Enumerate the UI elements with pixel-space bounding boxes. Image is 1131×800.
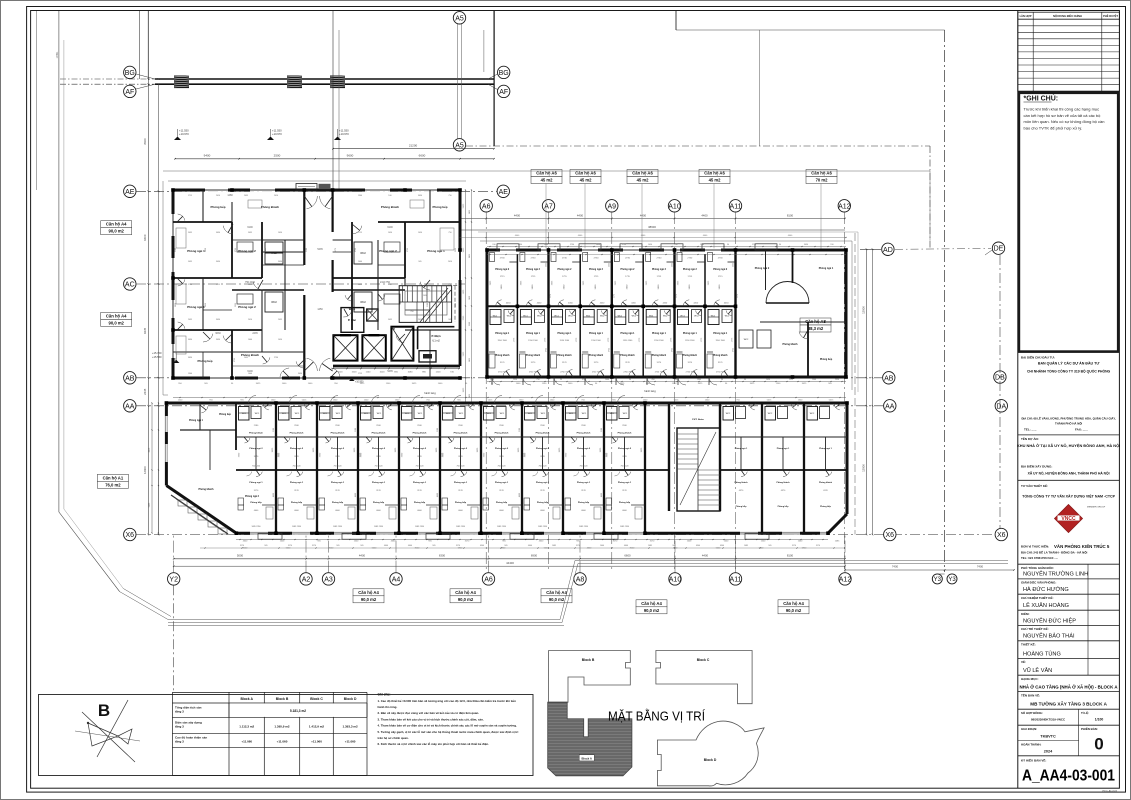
svg-text:5435: 5435 [358, 284, 362, 286]
svg-text:2750 750: 2750 750 [655, 372, 664, 374]
svg-text:Phòng ngủ 2: Phòng ngủ 2 [372, 447, 386, 450]
svg-text:7400: 7400 [977, 565, 984, 569]
svg-text:Phòng ngủ 1: Phòng ngủ 1 [187, 305, 205, 309]
svg-text:3530: 3530 [524, 453, 526, 457]
svg-text:1550 1560: 1550 1560 [623, 340, 633, 342]
svg-text:Căn hộ A4: Căn hộ A4 [546, 590, 567, 595]
svg-text:Phòng ngủ 1: Phòng ngủ 1 [819, 447, 832, 450]
svg-text:70 m2: 70 m2 [816, 178, 829, 183]
svg-text:LÊ XUÂN HOÀNG: LÊ XUÂN HOÀNG [1023, 601, 1069, 609]
svg-text:910: 910 [492, 244, 495, 246]
svg-text:P. Điện: P. Điện [431, 334, 440, 338]
svg-text:+11.060: +11.060 [345, 739, 356, 743]
svg-text:3. Tham khảo bản vẽ kết cấu ch: 3. Tham khảo bản vẽ kết cấu cho vị trí v… [378, 717, 484, 721]
svg-text:45 m2: 45 m2 [637, 178, 650, 183]
svg-text:905: 905 [264, 545, 267, 547]
svg-text:tầng 3: tầng 3 [175, 725, 184, 729]
svg-text:2750 750: 2750 750 [592, 372, 601, 374]
svg-text:Phòng khách: Phòng khách [454, 433, 468, 435]
svg-text:6900: 6900 [720, 545, 724, 547]
svg-text:1085 2350: 1085 2350 [456, 526, 465, 528]
svg-text:1450: 1450 [278, 339, 282, 341]
svg-text:Phòng ngủ 2: Phòng ngủ 2 [495, 268, 510, 271]
svg-text:90: 90 [560, 379, 562, 381]
svg-text:6. Kích thước và vị trí chính: 6. Kích thước và vị trí chính xác các lỗ… [378, 742, 490, 746]
svg-text:Phòng khách: Phòng khách [589, 355, 604, 357]
svg-text:AB: AB [125, 375, 135, 382]
svg-text:5000: 5000 [237, 554, 244, 558]
svg-text:Phòng bếp: Phòng bếp [619, 501, 631, 504]
svg-text:TÊN DỰ ÁN:: TÊN DỰ ÁN: [1021, 436, 1039, 441]
svg-text:1000: 1000 [338, 371, 344, 373]
svg-text:90: 90 [721, 379, 723, 381]
svg-text:2410: 2410 [448, 261, 452, 263]
svg-text:ĐỊA CHỈ: 243 ĐÊ LA THÀNH - ĐỐN: ĐỊA CHỈ: 243 ĐÊ LA THÀNH - ĐỐNG ĐA - HÀ … [1021, 549, 1088, 554]
svg-text:6600: 6600 [624, 554, 631, 558]
svg-text:2180: 2180 [437, 428, 439, 432]
svg-text:2335: 2335 [671, 263, 673, 267]
svg-text:tầng 3: tầng 3 [175, 710, 184, 714]
svg-text:Phòng bếp: Phòng bếp [291, 501, 303, 504]
svg-text:MẶT BẰNG VỊ TRÍ: MẶT BẰNG VỊ TRÍ [608, 709, 705, 724]
svg-text:Phòng ngủ 1: Phòng ngủ 1 [187, 249, 205, 253]
svg-text:2410: 2410 [248, 319, 252, 321]
svg-text:Phòng ngủ 2: Phòng ngủ 2 [413, 447, 427, 450]
svg-text:+15.550: +15.550 [152, 355, 162, 359]
svg-text:2180: 2180 [175, 248, 177, 252]
svg-text:3170: 3170 [240, 545, 244, 547]
svg-text:VẼ:: VẼ: [1021, 659, 1026, 664]
svg-text:HẠNG MỤC:: HẠNG MỤC: [1021, 677, 1039, 681]
svg-text:5. Tường xây gạch, vị trí các: 5. Tường xây gạch, vị trí các lỗ mở sàn … [378, 730, 519, 734]
svg-text:2180: 2180 [601, 428, 603, 432]
svg-text:6100: 6100 [247, 226, 253, 229]
svg-text:hành lang: hành lang [424, 391, 436, 395]
svg-text:1085 2350: 1085 2350 [538, 526, 547, 528]
svg-text:3170: 3170 [576, 545, 580, 547]
svg-text:THIẾT KẾ:: THIẾT KẾ: [1021, 641, 1036, 646]
svg-text:3030: 3030 [216, 261, 220, 263]
svg-text:X6: X6 [997, 532, 1006, 539]
svg-text:9630: 9630 [418, 195, 422, 197]
svg-text:Phòng ngủ 1: Phòng ngủ 1 [427, 249, 445, 253]
svg-text:90,0 m2: 90,0 m2 [644, 608, 660, 613]
svg-text:+10.970: +10.970 [179, 132, 189, 136]
svg-text:Phòng ngủ 2: Phòng ngủ 2 [621, 268, 636, 271]
svg-text:A2: A2 [302, 576, 311, 583]
svg-text:45 m2: 45 m2 [709, 178, 722, 183]
svg-text:Phòng ngủ 1: Phòng ngủ 1 [331, 481, 345, 484]
svg-text:2730: 2730 [625, 258, 631, 260]
svg-text:45 m2: 45 m2 [580, 178, 593, 183]
svg-text:Y3: Y3 [948, 577, 956, 583]
svg-text:1000: 1000 [358, 261, 362, 263]
svg-text:6100: 6100 [387, 226, 393, 229]
svg-text:1200: 1200 [436, 371, 442, 373]
svg-text:PHIÊN BẢN:: PHIÊN BẢN: [1081, 726, 1098, 731]
svg-text:1550 1560: 1550 1560 [715, 340, 725, 342]
svg-text:76,0 m2: 76,0 m2 [105, 482, 121, 487]
svg-text:1000: 1000 [248, 339, 252, 341]
svg-text:Y2: Y2 [169, 576, 178, 583]
svg-text:8100: 8100 [787, 213, 794, 217]
svg-text:3030: 3030 [205, 248, 207, 252]
svg-text:+11.060: +11.060 [241, 739, 252, 743]
svg-text:Căn hộ A4: Căn hộ A4 [358, 590, 379, 595]
svg-text:Phòng ngủ 1: Phòng ngủ 1 [819, 267, 834, 270]
svg-text:1550 1560: 1550 1560 [528, 340, 538, 342]
svg-text:4600: 4600 [384, 545, 388, 547]
svg-text:4600: 4600 [355, 493, 357, 497]
svg-text:38,3 m2: 38,3 m2 [808, 326, 824, 331]
svg-text:3735: 3735 [671, 348, 673, 352]
svg-text:2335: 2335 [609, 263, 611, 267]
svg-text:Phòng khách: Phòng khách [536, 433, 550, 435]
svg-text:Căn hộ A4: Căn hộ A4 [641, 601, 662, 606]
svg-text:Phòng ngủ 2: Phòng ngủ 2 [652, 268, 667, 271]
svg-text:1000: 1000 [605, 379, 609, 381]
svg-text:Phòng khách: Phòng khách [331, 433, 345, 435]
svg-text:2750 750: 2750 750 [560, 372, 569, 374]
svg-text:12900: 12900 [143, 466, 147, 474]
svg-text:A5: A5 [455, 142, 464, 149]
svg-text:3030: 3030 [175, 358, 177, 362]
svg-text:Phòng bếp: Phòng bếp [211, 205, 226, 209]
svg-text:750 1420: 750 1420 [416, 466, 424, 468]
svg-text:Phòng bếp: Phòng bếp [373, 501, 385, 504]
svg-text:750: 750 [536, 379, 539, 381]
svg-text:4600: 4600 [528, 545, 532, 547]
svg-text:Phòng ngủ 1: Phòng ngủ 1 [495, 481, 509, 484]
svg-text:2730: 2730 [687, 258, 693, 260]
svg-text:2730: 2730 [718, 258, 724, 260]
svg-text:2730: 2730 [274, 357, 278, 359]
svg-text:Trước khi triển khai thi công: Trước khi triển khai thi công các hạng m… [1024, 107, 1100, 112]
svg-text:2180: 2180 [427, 303, 429, 307]
svg-text:905: 905 [672, 545, 675, 547]
svg-text:9630: 9630 [215, 332, 221, 335]
svg-text:5435: 5435 [248, 284, 252, 286]
svg-text:GIÁM ĐỐC VĂN PHÒNG:: GIÁM ĐỐC VĂN PHÒNG: [1021, 580, 1056, 585]
svg-text:3030: 3030 [205, 303, 207, 307]
svg-text:1175: 1175 [550, 294, 552, 298]
svg-text:1450: 1450 [418, 232, 422, 234]
svg-text:A3: A3 [324, 576, 333, 583]
svg-text:1550 1560: 1550 1560 [497, 340, 507, 342]
svg-text:Block C: Block C [310, 697, 323, 701]
svg-text:TÊN BẢN VẼ:: TÊN BẢN VẼ: [1021, 692, 1040, 697]
svg-text:1000: 1000 [600, 545, 604, 547]
svg-text:1100: 1100 [366, 371, 371, 373]
svg-text:ĐƠN VỊ THỰC HIỆN:: ĐƠN VỊ THỰC HIỆN: [1021, 544, 1049, 549]
svg-text:2024: 2024 [1044, 749, 1053, 753]
svg-text:Phòng ngủ 2: Phòng ngủ 2 [557, 268, 572, 271]
svg-text:2435: 2435 [278, 319, 282, 321]
svg-text:CHỦ NHIỆM THIẾT KẾ:: CHỦ NHIỆM THIẾT KẾ: [1021, 595, 1054, 600]
svg-text:1. Cao độ thiết kế ±0.000 trên: 1. Cao độ thiết kế ±0.000 trên bản vẽ tư… [378, 699, 517, 703]
svg-text:A10: A10 [669, 576, 682, 583]
svg-text:5435: 5435 [469, 210, 471, 214]
svg-text:1450: 1450 [423, 295, 427, 297]
svg-text:3030: 3030 [216, 319, 220, 321]
svg-text:1085: 1085 [648, 545, 652, 547]
svg-text:P.KT. Nước: P.KT. Nước [692, 419, 704, 421]
svg-text:100: 100 [388, 195, 391, 197]
svg-text:Phòng ngủ 1: Phòng ngủ 1 [536, 481, 550, 484]
svg-text:750 1420: 750 1420 [375, 466, 383, 468]
svg-text:750 1420: 750 1420 [334, 466, 342, 468]
svg-text:1000: 1000 [380, 371, 386, 373]
svg-text:Phòng ngủ 1: Phòng ngủ 1 [652, 332, 667, 335]
svg-text:Căn hộ A4: Căn hộ A4 [455, 590, 476, 595]
svg-text:Phòng ngủ 1: Phòng ngủ 1 [777, 447, 790, 450]
svg-text:Phòng khách: Phòng khách [372, 433, 386, 435]
svg-text:4400: 4400 [514, 213, 521, 217]
svg-text:2730: 2730 [188, 284, 192, 286]
svg-text:1085 2350: 1085 2350 [333, 526, 342, 528]
svg-text:AD: AD [883, 247, 893, 254]
svg-text:2730: 2730 [562, 258, 568, 260]
svg-text:Phòng ngủ 1: Phòng ngủ 1 [713, 332, 728, 335]
svg-text:3030: 3030 [298, 373, 302, 375]
svg-text:1715: 1715 [358, 232, 362, 234]
svg-text:Căn hộ A4: Căn hộ A4 [106, 313, 127, 318]
svg-text:trên hệ sơ chính quan.: trên hệ sơ chính quan. [378, 736, 409, 740]
svg-text:TEL: 024 37661706 FAX:.....: TEL: 024 37661706 FAX:..... [1021, 556, 1058, 560]
svg-text:TEL: ......: TEL: ...... [1024, 427, 1037, 431]
svg-text:6900: 6900 [480, 545, 484, 547]
svg-text:2750 750: 2750 750 [623, 372, 632, 374]
svg-text:AA: AA [125, 403, 135, 410]
svg-text:1085 2350: 1085 2350 [374, 526, 383, 528]
svg-text:905: 905 [418, 261, 421, 263]
svg-text:2435: 2435 [244, 357, 248, 359]
svg-text:2180: 2180 [355, 428, 357, 432]
svg-text:21200: 21200 [409, 143, 418, 147]
svg-text:Phòng khách: Phòng khách [557, 355, 572, 357]
svg-text:Phòng ngủ 1: Phòng ngủ 1 [290, 481, 304, 484]
svg-text:A12: A12 [838, 203, 851, 210]
svg-text:45 m2: 45 m2 [541, 178, 554, 183]
svg-text:1175: 1175 [676, 294, 678, 298]
svg-text:Phòng bếp: Phòng bếp [578, 501, 590, 504]
svg-text:A7: A7 [544, 203, 553, 210]
svg-text:905: 905 [504, 545, 507, 547]
svg-text:cần kết hợp hồ sơ bản vẽ của t: cần kết hợp hồ sơ bản vẽ của tất cả các … [1024, 113, 1102, 118]
svg-text:+11.060: +11.060 [277, 739, 288, 743]
svg-text:Phòng bếp: Phòng bếp [198, 359, 213, 363]
svg-text:Phòng ngủ 2: Phòng ngủ 2 [536, 447, 550, 450]
svg-text:3170: 3170 [288, 545, 292, 547]
svg-text:1000: 1000 [248, 373, 252, 375]
svg-text:1550 1560: 1550 1560 [654, 340, 664, 342]
svg-text:B: B [98, 701, 110, 720]
svg-text:Phòng ngủ 1: Phòng ngủ 1 [372, 481, 386, 484]
svg-text:ĐẠI DIỆN CHỦ ĐẦU TƯ:: ĐẠI DIỆN CHỦ ĐẦU TƯ: [1021, 355, 1055, 360]
svg-text:38600: 38600 [648, 225, 656, 229]
svg-text:TỈ LỆ:: TỈ LỆ: [1081, 710, 1089, 715]
svg-text:2730: 2730 [752, 244, 756, 246]
svg-text:750 1420: 750 1420 [580, 466, 588, 468]
svg-text:Phòng ngủ 2: Phòng ngủ 2 [245, 495, 260, 498]
svg-text:WC2: WC2 [360, 252, 366, 255]
svg-text:1300: 1300 [358, 195, 362, 197]
svg-text:7400: 7400 [892, 565, 899, 569]
svg-text:1085 2350: 1085 2350 [497, 526, 506, 528]
svg-text:3530: 3530 [360, 453, 362, 457]
svg-text:Y3: Y3 [934, 577, 942, 583]
svg-text:X6: X6 [886, 532, 895, 539]
svg-text:4400: 4400 [577, 213, 584, 217]
svg-text:2180: 2180 [306, 248, 308, 252]
svg-text:3030: 3030 [278, 261, 282, 263]
svg-text:Căn hộ A4: Căn hộ A4 [783, 601, 804, 606]
svg-text:3735: 3735 [355, 248, 357, 252]
svg-text:Phòng bếp: Phòng bếp [219, 413, 231, 416]
svg-text:2435: 2435 [188, 319, 192, 321]
svg-text:2630: 2630 [596, 244, 600, 246]
svg-text:A6: A6 [484, 576, 493, 583]
svg-text:Phòng ngủ 2: Phòng ngủ 2 [495, 447, 509, 450]
svg-text:90: 90 [744, 379, 746, 381]
svg-text:750 1420: 750 1420 [621, 466, 629, 468]
svg-text:2435: 2435 [143, 388, 147, 395]
svg-text:BG: BG [499, 70, 509, 77]
svg-text:Phòng ngủ 2: Phòng ngủ 2 [755, 267, 770, 270]
svg-text:*GHI CHÚ:: *GHI CHÚ: [1024, 94, 1059, 103]
svg-text:1.393,3 m2: 1.393,3 m2 [343, 724, 359, 728]
svg-text:Phòng khách: Phòng khách [526, 355, 541, 357]
svg-text:2410: 2410 [274, 195, 278, 197]
svg-text:MEMBER GROUP: MEMBER GROUP [1087, 507, 1106, 509]
svg-text:+15.700: +15.700 [152, 351, 162, 355]
svg-text:KÝ HIỆU BẢN VẼ:: KÝ HIỆU BẢN VẼ: [1021, 757, 1046, 762]
svg-text:Phòng khách: Phòng khách [577, 433, 591, 435]
svg-text:1550 1560: 1550 1560 [560, 340, 570, 342]
svg-text:Block B: Block B [582, 658, 595, 662]
svg-text:Phòng bếp: Phòng bếp [433, 205, 448, 209]
svg-text:1550 1560: 1550 1560 [591, 340, 601, 342]
svg-text:9435: 9435 [469, 254, 471, 258]
svg-text:750 1420: 750 1420 [539, 466, 547, 468]
svg-text:90: 90 [779, 244, 781, 246]
svg-text:Phòng ngủ 2: Phòng ngủ 2 [249, 447, 263, 450]
svg-text:KHU NHÀ Ở TẠI XÃ UY NỖ, HUYỆN: KHU NHÀ Ở TẠI XÃ UY NỖ, HUYỆN ĐÔNG ANH, … [1017, 443, 1120, 448]
svg-text:3530: 3530 [442, 453, 444, 457]
svg-text:1.412,9 m2: 1.412,9 m2 [309, 724, 325, 728]
svg-text:WC2: WC2 [360, 301, 366, 304]
svg-text:Phòng ngủ 2: Phòng ngủ 2 [713, 268, 728, 271]
svg-text:Phòng ngủ 2: Phòng ngủ 2 [238, 305, 256, 309]
svg-text:1175: 1175 [335, 248, 337, 252]
svg-text:4400: 4400 [359, 554, 366, 558]
svg-text:A11: A11 [730, 576, 742, 583]
svg-text:3170: 3170 [792, 545, 796, 547]
svg-text:MB TƯỜNG XÂY TẦNG 3 BLOCK A: MB TƯỜNG XÂY TẦNG 3 BLOCK A [1030, 699, 1107, 706]
svg-text:1175: 1175 [737, 294, 739, 298]
svg-text:Phòng khách: Phòng khách [290, 433, 304, 435]
svg-text:1480: 1480 [227, 194, 233, 197]
svg-text:Phòng khách: Phòng khách [819, 482, 833, 484]
svg-text:hành lang: hành lang [644, 389, 656, 393]
svg-text:Phòng ngủ 2: Phòng ngủ 2 [526, 268, 541, 271]
svg-text:GIAI ĐOẠN:: GIAI ĐOẠN: [1021, 727, 1037, 731]
svg-text:hành thi công.: hành thi công. [378, 705, 398, 709]
svg-text:750: 750 [388, 284, 391, 286]
svg-text:1085 2350: 1085 2350 [620, 526, 629, 528]
svg-text:Phòng khách: Phòng khách [381, 205, 399, 209]
svg-text:750 1420: 750 1420 [457, 466, 465, 468]
svg-text:AE: AE [125, 189, 135, 196]
svg-text:2335: 2335 [455, 248, 457, 252]
svg-text:5435: 5435 [317, 248, 323, 251]
svg-text:4400: 4400 [640, 213, 647, 217]
svg-text:SỐ HỢP ĐỒNG:: SỐ HỢP ĐỒNG: [1021, 710, 1043, 715]
svg-text:905: 905 [768, 545, 771, 547]
svg-text:3735: 3735 [235, 248, 237, 252]
svg-text:A4: A4 [392, 576, 401, 583]
svg-text:905: 905 [432, 545, 435, 547]
svg-text:5435: 5435 [388, 319, 392, 321]
svg-text:1.112,3 m2: 1.112,3 m2 [239, 724, 254, 728]
svg-text:1715: 1715 [216, 284, 220, 286]
svg-text:8100: 8100 [787, 554, 794, 558]
svg-text:Block A: Block A [240, 697, 253, 701]
svg-text:Phòng ngủ 2: Phòng ngủ 2 [238, 249, 256, 253]
svg-text:4600: 4600 [408, 545, 412, 547]
svg-text:Phòng ngủ 1: Phòng ngủ 1 [618, 481, 632, 484]
svg-text:3735: 3735 [234, 358, 236, 362]
svg-text:P. Rác: P. Rác [348, 318, 357, 322]
svg-text:HOÀN THÀNH:: HOÀN THÀNH: [1021, 741, 1041, 746]
svg-text:ĐỊA CHỈ: 68 LÊ VĂN LƯƠNG, PHƯỜ: ĐỊA CHỈ: 68 LÊ VĂN LƯƠNG, PHƯỜNG TRUNG H… [1021, 416, 1116, 421]
svg-text:5435: 5435 [188, 232, 192, 234]
svg-text:2750 750: 2750 750 [716, 372, 725, 374]
svg-text:1085: 1085 [744, 545, 748, 547]
svg-text:1085 2350: 1085 2350 [292, 526, 301, 528]
svg-text:VŨ LÊ VÂN: VŨ LÊ VÂN [1023, 666, 1052, 674]
svg-text:Căn hộ A4: Căn hộ A4 [106, 222, 127, 227]
svg-text:HÀ ĐỨC HƯỚNG: HÀ ĐỨC HƯỚNG [1023, 586, 1069, 593]
svg-text:4600: 4600 [601, 493, 603, 497]
svg-text:Phòng bếp: Phòng bếp [820, 505, 831, 508]
svg-text:1500: 1500 [352, 371, 358, 373]
svg-text:1450: 1450 [317, 308, 323, 311]
svg-text:AF: AF [499, 89, 508, 96]
svg-text:Phòng ngủ 2: Phòng ngủ 2 [379, 249, 397, 253]
svg-text:Block A: Block A [582, 757, 592, 761]
svg-text:KIỂM:: KIỂM: [1021, 611, 1030, 616]
svg-text:2730: 2730 [531, 258, 537, 260]
svg-text:+10.970: +10.970 [339, 132, 349, 136]
svg-text:2435: 2435 [252, 332, 258, 335]
svg-text:2730: 2730 [500, 258, 506, 260]
svg-text:VNCC-A5.2023: VNCC-A5.2023 [1102, 790, 1118, 793]
svg-text:90: 90 [727, 244, 729, 246]
svg-text:1300: 1300 [188, 373, 192, 375]
svg-text:3170: 3170 [816, 545, 820, 547]
svg-text:1085: 1085 [552, 545, 556, 547]
svg-text:Phòng khách: Phòng khách [713, 355, 728, 357]
svg-text:1450: 1450 [278, 232, 282, 234]
svg-text:1.395,9 m2: 1.395,9 m2 [274, 724, 290, 728]
svg-text:báo cho TVTK để phối hợp xử lý: báo cho TVTK để phối hợp xử lý. [1024, 125, 1083, 130]
svg-text:3170: 3170 [456, 545, 460, 547]
svg-text:1450: 1450 [469, 296, 471, 300]
svg-text:2335: 2335 [545, 263, 547, 267]
svg-text:1900: 1900 [674, 379, 678, 381]
svg-text:Phòng khách: Phòng khách [618, 433, 632, 435]
